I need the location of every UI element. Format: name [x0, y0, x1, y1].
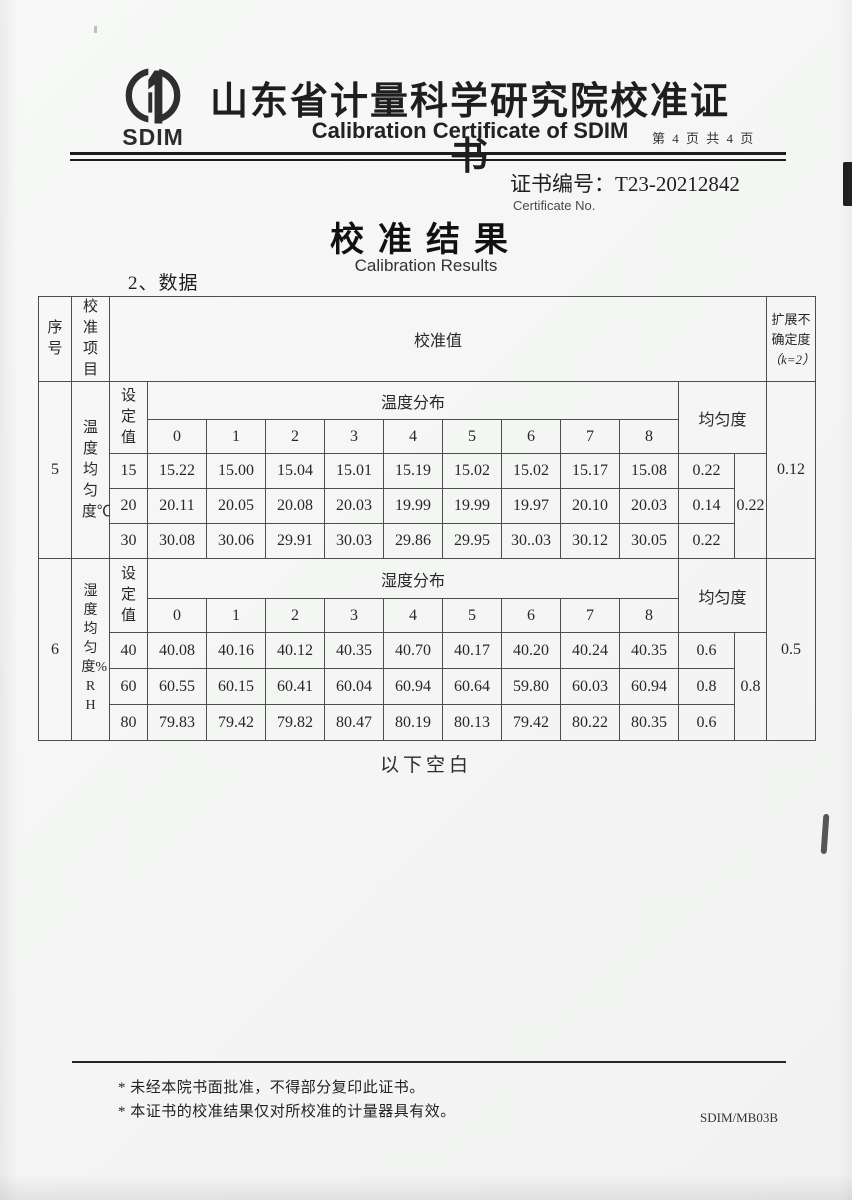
hum-pos-0: 0: [148, 599, 207, 633]
footnote-no-partial-copy: * 未经本院书面批准，不得部分复印此证书。: [118, 1076, 425, 1097]
table-cell: 79.82: [266, 705, 325, 741]
temp-pos-6: 6: [502, 420, 561, 454]
table-cell: 29.86: [384, 524, 443, 559]
table-cell: 80.35: [620, 705, 679, 741]
table-cell: 79.42: [207, 705, 266, 741]
table-cell: 15.04: [266, 454, 325, 489]
header-calibration-value: 校准值: [110, 297, 767, 382]
sdim-logo-icon: [114, 64, 192, 130]
table-cell: 60.94: [384, 669, 443, 705]
table-cell: 15.19: [384, 454, 443, 489]
hum-row-uniformity: 0.6: [679, 705, 735, 741]
temp-subheader-row: 5 温度均匀度℃ 设定值 温度分布 均匀度 0.12: [39, 382, 816, 420]
temp-overall-uniformity: 0.22: [735, 454, 767, 559]
temp-setpoint: 20: [110, 489, 148, 524]
data-section-heading: 2、数据: [128, 268, 199, 295]
temp-pos-0: 0: [148, 420, 207, 454]
table-cell: 40.35: [325, 633, 384, 669]
table-cell: 40.16: [207, 633, 266, 669]
blank-below-note: 以下空白: [0, 750, 852, 777]
temp-row-30: 30 30.08 30.06 29.91 30.03 29.86 29.95 3…: [39, 524, 816, 559]
calibration-results-table: 序号 校准项目 校准值 扩展不确定度 （k=2） 5 温度均匀度℃ 设定值 温度…: [38, 296, 816, 741]
temp-pos-7: 7: [561, 420, 620, 454]
temp-setpoint-header: 设定值: [110, 382, 148, 454]
table-cell: 20.10: [561, 489, 620, 524]
table-cell: 40.24: [561, 633, 620, 669]
table-cell: 40.70: [384, 633, 443, 669]
table-cell: 15.17: [561, 454, 620, 489]
hum-distribution-header: 湿度分布: [148, 559, 679, 599]
hum-pos-6: 6: [502, 599, 561, 633]
hum-setpoint-header: 设定值: [110, 559, 148, 633]
temp-pos-3: 3: [325, 420, 384, 454]
certificate-number-line: 证书编号：T23-20212842: [510, 168, 740, 198]
table-cell: 20.03: [620, 489, 679, 524]
table-cell: 60.15: [207, 669, 266, 705]
table-cell: 60.64: [443, 669, 502, 705]
temp-setpoint: 15: [110, 454, 148, 489]
table-cell: 40.35: [620, 633, 679, 669]
footnote-validity: * 本证书的校准结果仅对所校准的计量器具有效。: [118, 1100, 456, 1121]
table-cell: 40.12: [266, 633, 325, 669]
certificate-number-value: T23-20212842: [615, 172, 740, 196]
temp-pos-5: 5: [443, 420, 502, 454]
table-cell: 15.22: [148, 454, 207, 489]
table-cell: 15.08: [620, 454, 679, 489]
hum-row-uniformity: 0.8: [679, 669, 735, 705]
hum-subheader-row: 6 湿度均匀度%RH 设定值 湿度分布 均匀度 0.5: [39, 559, 816, 599]
hum-seq: 6: [39, 559, 72, 741]
certificate-page: SDIM 山东省计量科学研究院校准证书 Calibration Certific…: [0, 0, 852, 1200]
temp-row-uniformity: 0.22: [679, 454, 735, 489]
scan-artifact-lower: [821, 814, 830, 854]
temp-setpoint: 30: [110, 524, 148, 559]
temp-item: 温度均匀度℃: [72, 382, 110, 559]
temp-uniformity-header: 均匀度: [679, 382, 767, 454]
hum-row-80: 80 79.83 79.42 79.82 80.47 80.19 80.13 7…: [39, 705, 816, 741]
temp-pos-8: 8: [620, 420, 679, 454]
table-cell: 60.94: [620, 669, 679, 705]
table-cell: 20.08: [266, 489, 325, 524]
table-cell: 19.97: [502, 489, 561, 524]
table-cell: 80.13: [443, 705, 502, 741]
table-cell: 60.41: [266, 669, 325, 705]
hum-pos-2: 2: [266, 599, 325, 633]
table-cell: 80.22: [561, 705, 620, 741]
temp-pos-4: 4: [384, 420, 443, 454]
table-cell: 15.00: [207, 454, 266, 489]
table-cell: 60.03: [561, 669, 620, 705]
table-cell: 30.05: [620, 524, 679, 559]
hum-row-uniformity: 0.6: [679, 633, 735, 669]
table-cell: 15.01: [325, 454, 384, 489]
table-cell: 15.02: [502, 454, 561, 489]
table-cell: 20.05: [207, 489, 266, 524]
table-cell: 29.95: [443, 524, 502, 559]
header-item: 校准项目: [72, 297, 110, 382]
hum-pos-8: 8: [620, 599, 679, 633]
sdim-logo: SDIM: [98, 64, 208, 156]
table-cell: 15.02: [443, 454, 502, 489]
certificate-number-label-en: Certificate No.: [513, 198, 595, 213]
hum-pos-7: 7: [561, 599, 620, 633]
certificate-number-label: 证书编号：: [510, 172, 615, 196]
temp-seq: 5: [39, 382, 72, 559]
hum-pos-5: 5: [443, 599, 502, 633]
hum-pos-3: 3: [325, 599, 384, 633]
table-cell: 20.03: [325, 489, 384, 524]
results-title-cn: 校准结果: [0, 212, 852, 261]
hum-setpoint: 80: [110, 705, 148, 741]
form-code: SDIM/MB03B: [700, 1110, 778, 1126]
hum-expanded-uncertainty: 0.5: [767, 559, 816, 741]
temp-row-20: 20 20.11 20.05 20.08 20.03 19.99 19.99 1…: [39, 489, 816, 524]
table-cell: 29.91: [266, 524, 325, 559]
table-cell: 30.06: [207, 524, 266, 559]
header-seq: 序号: [39, 297, 72, 382]
table-cell: 79.42: [502, 705, 561, 741]
sdim-logo-text: SDIM: [98, 124, 208, 151]
table-cell: 40.08: [148, 633, 207, 669]
hum-pos-1: 1: [207, 599, 266, 633]
header-expanded-uncertainty: 扩展不确定度 （k=2）: [767, 297, 816, 382]
table-cell: 30..03: [502, 524, 561, 559]
temp-pos-2: 2: [266, 420, 325, 454]
table-cell: 20.11: [148, 489, 207, 524]
hum-row-60: 60 60.55 60.15 60.41 60.04 60.94 60.64 5…: [39, 669, 816, 705]
table-cell: 19.99: [443, 489, 502, 524]
table-cell: 60.55: [148, 669, 207, 705]
table-cell: 80.47: [325, 705, 384, 741]
hum-pos-4: 4: [384, 599, 443, 633]
table-cell: 79.83: [148, 705, 207, 741]
hum-item: 湿度均匀度%RH: [72, 559, 110, 741]
hum-setpoint: 40: [110, 633, 148, 669]
temp-row-15: 15 15.22 15.00 15.04 15.01 15.19 15.02 1…: [39, 454, 816, 489]
temp-pos-1: 1: [207, 420, 266, 454]
temp-distribution-header: 温度分布: [148, 382, 679, 420]
header-divider: [70, 152, 786, 161]
hum-row-40: 40 40.08 40.16 40.12 40.35 40.70 40.17 4…: [39, 633, 816, 669]
table-cell: 30.12: [561, 524, 620, 559]
table-cell: 59.80: [502, 669, 561, 705]
table-cell: 40.17: [443, 633, 502, 669]
page-number: 第 4 页 共 4 页: [652, 128, 755, 147]
footer-divider: [72, 1061, 786, 1063]
temp-row-uniformity: 0.14: [679, 489, 735, 524]
hum-overall-uniformity: 0.8: [735, 633, 767, 741]
scan-artifact-top-left: [94, 26, 97, 33]
temp-expanded-uncertainty: 0.12: [767, 382, 816, 559]
hum-uniformity-header: 均匀度: [679, 559, 767, 633]
table-cell: 40.20: [502, 633, 561, 669]
temp-row-uniformity: 0.22: [679, 524, 735, 559]
table-cell: 80.19: [384, 705, 443, 741]
table-cell: 30.08: [148, 524, 207, 559]
hum-setpoint: 60: [110, 669, 148, 705]
table-cell: 60.04: [325, 669, 384, 705]
scan-artifact-right: [843, 162, 852, 206]
table-cell: 30.03: [325, 524, 384, 559]
table-cell: 19.99: [384, 489, 443, 524]
table-header-row: 序号 校准项目 校准值 扩展不确定度 （k=2）: [39, 297, 816, 382]
